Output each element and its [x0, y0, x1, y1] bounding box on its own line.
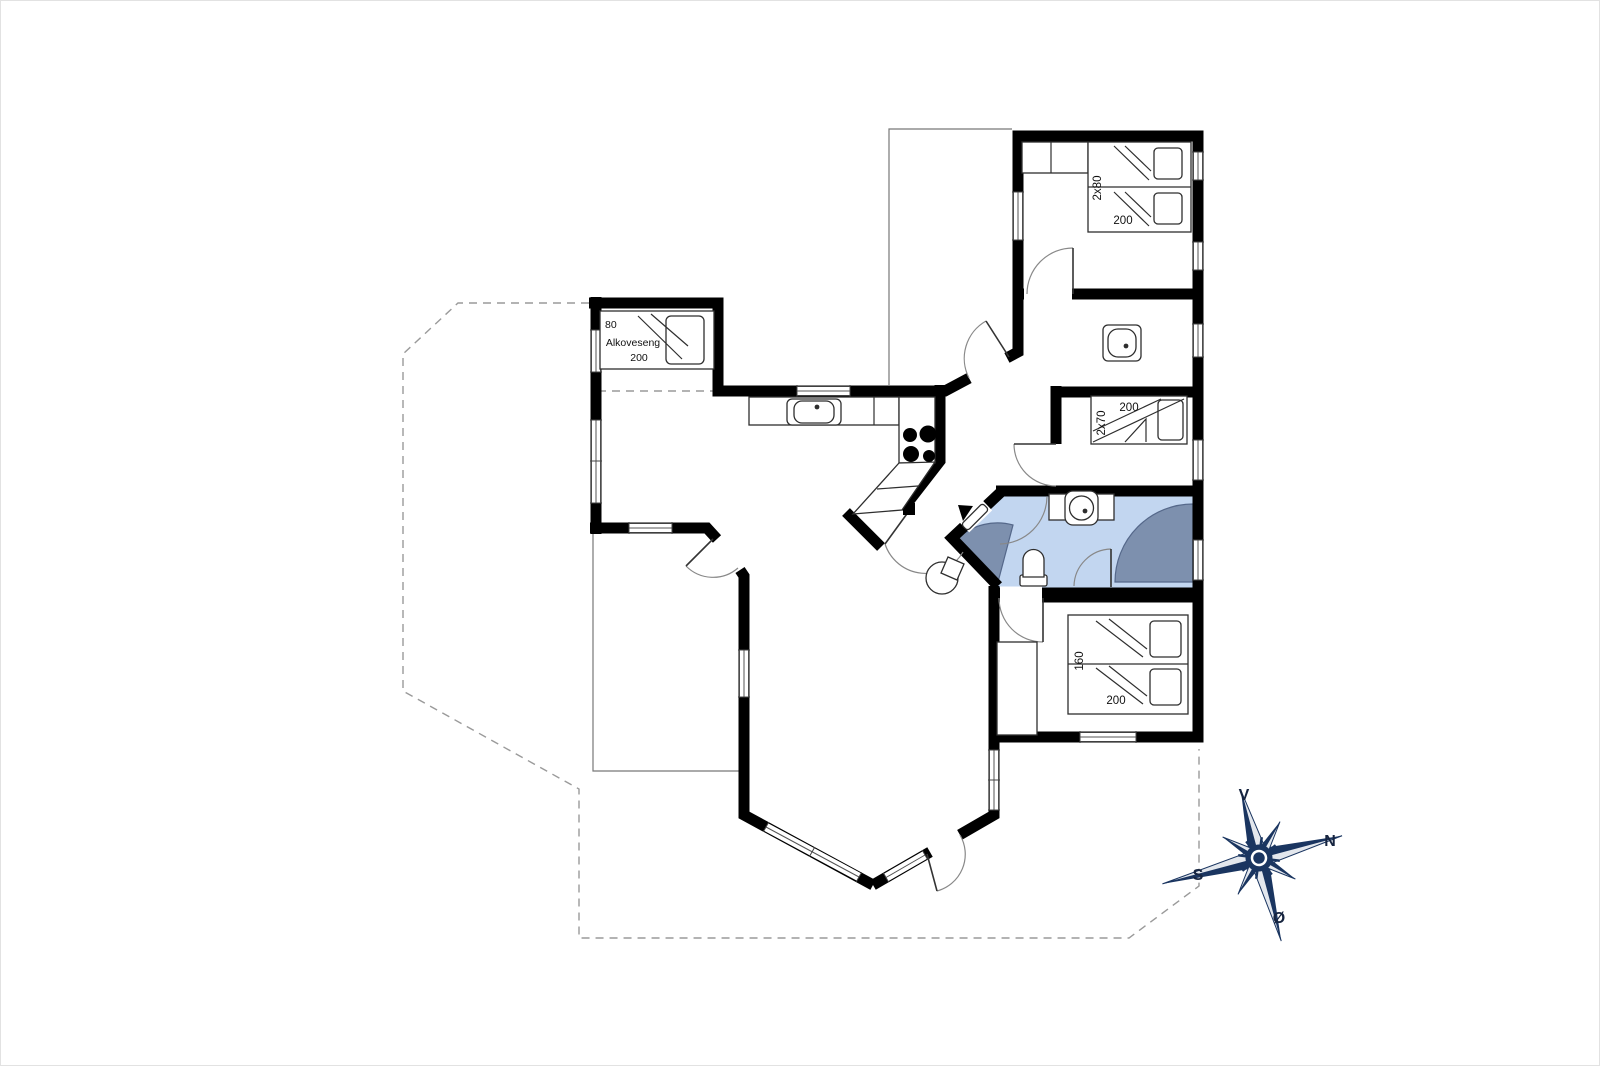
window: [590, 420, 602, 503]
furniture: [600, 142, 1191, 735]
hall-sink-bowl: [1108, 329, 1136, 357]
pillow: [1154, 148, 1182, 179]
bunk-bed-length-label: 200: [1119, 402, 1138, 414]
kitchen-sink-basin: [794, 401, 834, 423]
door-terrace: [686, 539, 738, 577]
covered-terrace-outline: [593, 534, 739, 771]
bunk-bed-size-label: 2x70: [1096, 411, 1108, 436]
carport-outline: [889, 129, 1012, 385]
floor-plan-page: 80 Alkoveseng 200 2x80 200 2x70 200 160 …: [0, 0, 1600, 1066]
window: [1192, 440, 1204, 480]
window: [738, 650, 750, 697]
wardrobe: [997, 642, 1037, 735]
window: [1012, 192, 1024, 240]
compass-label-s: S: [1193, 867, 1204, 884]
bath-faucet: [1083, 509, 1088, 514]
door-bedroom-double: [999, 595, 1043, 642]
wardrobe: [1022, 142, 1088, 173]
window: [629, 522, 672, 534]
window: [988, 750, 1000, 810]
bed-double-top: [1022, 142, 1191, 232]
alcove-name-label: Alkoveseng: [606, 337, 660, 349]
floor-plan-canvas: 80 Alkoveseng 200 2x80 200 2x70 200 160 …: [1, 1, 1600, 1067]
window: [1192, 242, 1204, 270]
toilet-bowl: [1023, 550, 1044, 578]
door-entrance: [964, 321, 1009, 378]
pillow: [666, 316, 704, 364]
compass-rose: V N S Ø: [1144, 768, 1364, 967]
window: [1192, 324, 1204, 357]
compass-label-n: N: [1324, 833, 1336, 850]
door-bay-terrace: [927, 835, 965, 891]
alcove-length-label: 200: [630, 352, 648, 364]
passage-stub-wall: [846, 512, 881, 547]
pillow: [1154, 193, 1182, 224]
bed-double-bottom: [997, 615, 1188, 735]
door-bunk-room: [1014, 444, 1056, 486]
pillow: [1150, 669, 1181, 705]
bay-east-wall: [873, 586, 994, 885]
bath-sink-bowl: [1070, 496, 1094, 520]
compass-label-o: Ø: [1273, 910, 1285, 927]
kitchen-faucet: [815, 405, 820, 410]
bedroom-top-bed-size-label: 2x80: [1092, 176, 1104, 201]
window: [797, 385, 850, 397]
bedroom-double-length-label: 200: [1106, 695, 1125, 707]
window: [883, 850, 927, 882]
bedroom-top-bed-length-label: 200: [1113, 215, 1132, 227]
window: [1192, 540, 1204, 580]
bedroom-double-size-label: 160: [1074, 651, 1086, 670]
pillow: [1150, 621, 1181, 657]
door-bedroom-top: [1024, 248, 1073, 294]
window: [763, 822, 861, 882]
window: [1192, 152, 1204, 180]
bay-west-wall: [740, 570, 873, 885]
window: [1080, 731, 1136, 743]
hall-faucet: [1124, 344, 1129, 349]
alcove-width-label: 80: [605, 319, 617, 331]
kitchen: [749, 397, 964, 594]
compass-label-v: V: [1239, 787, 1250, 804]
